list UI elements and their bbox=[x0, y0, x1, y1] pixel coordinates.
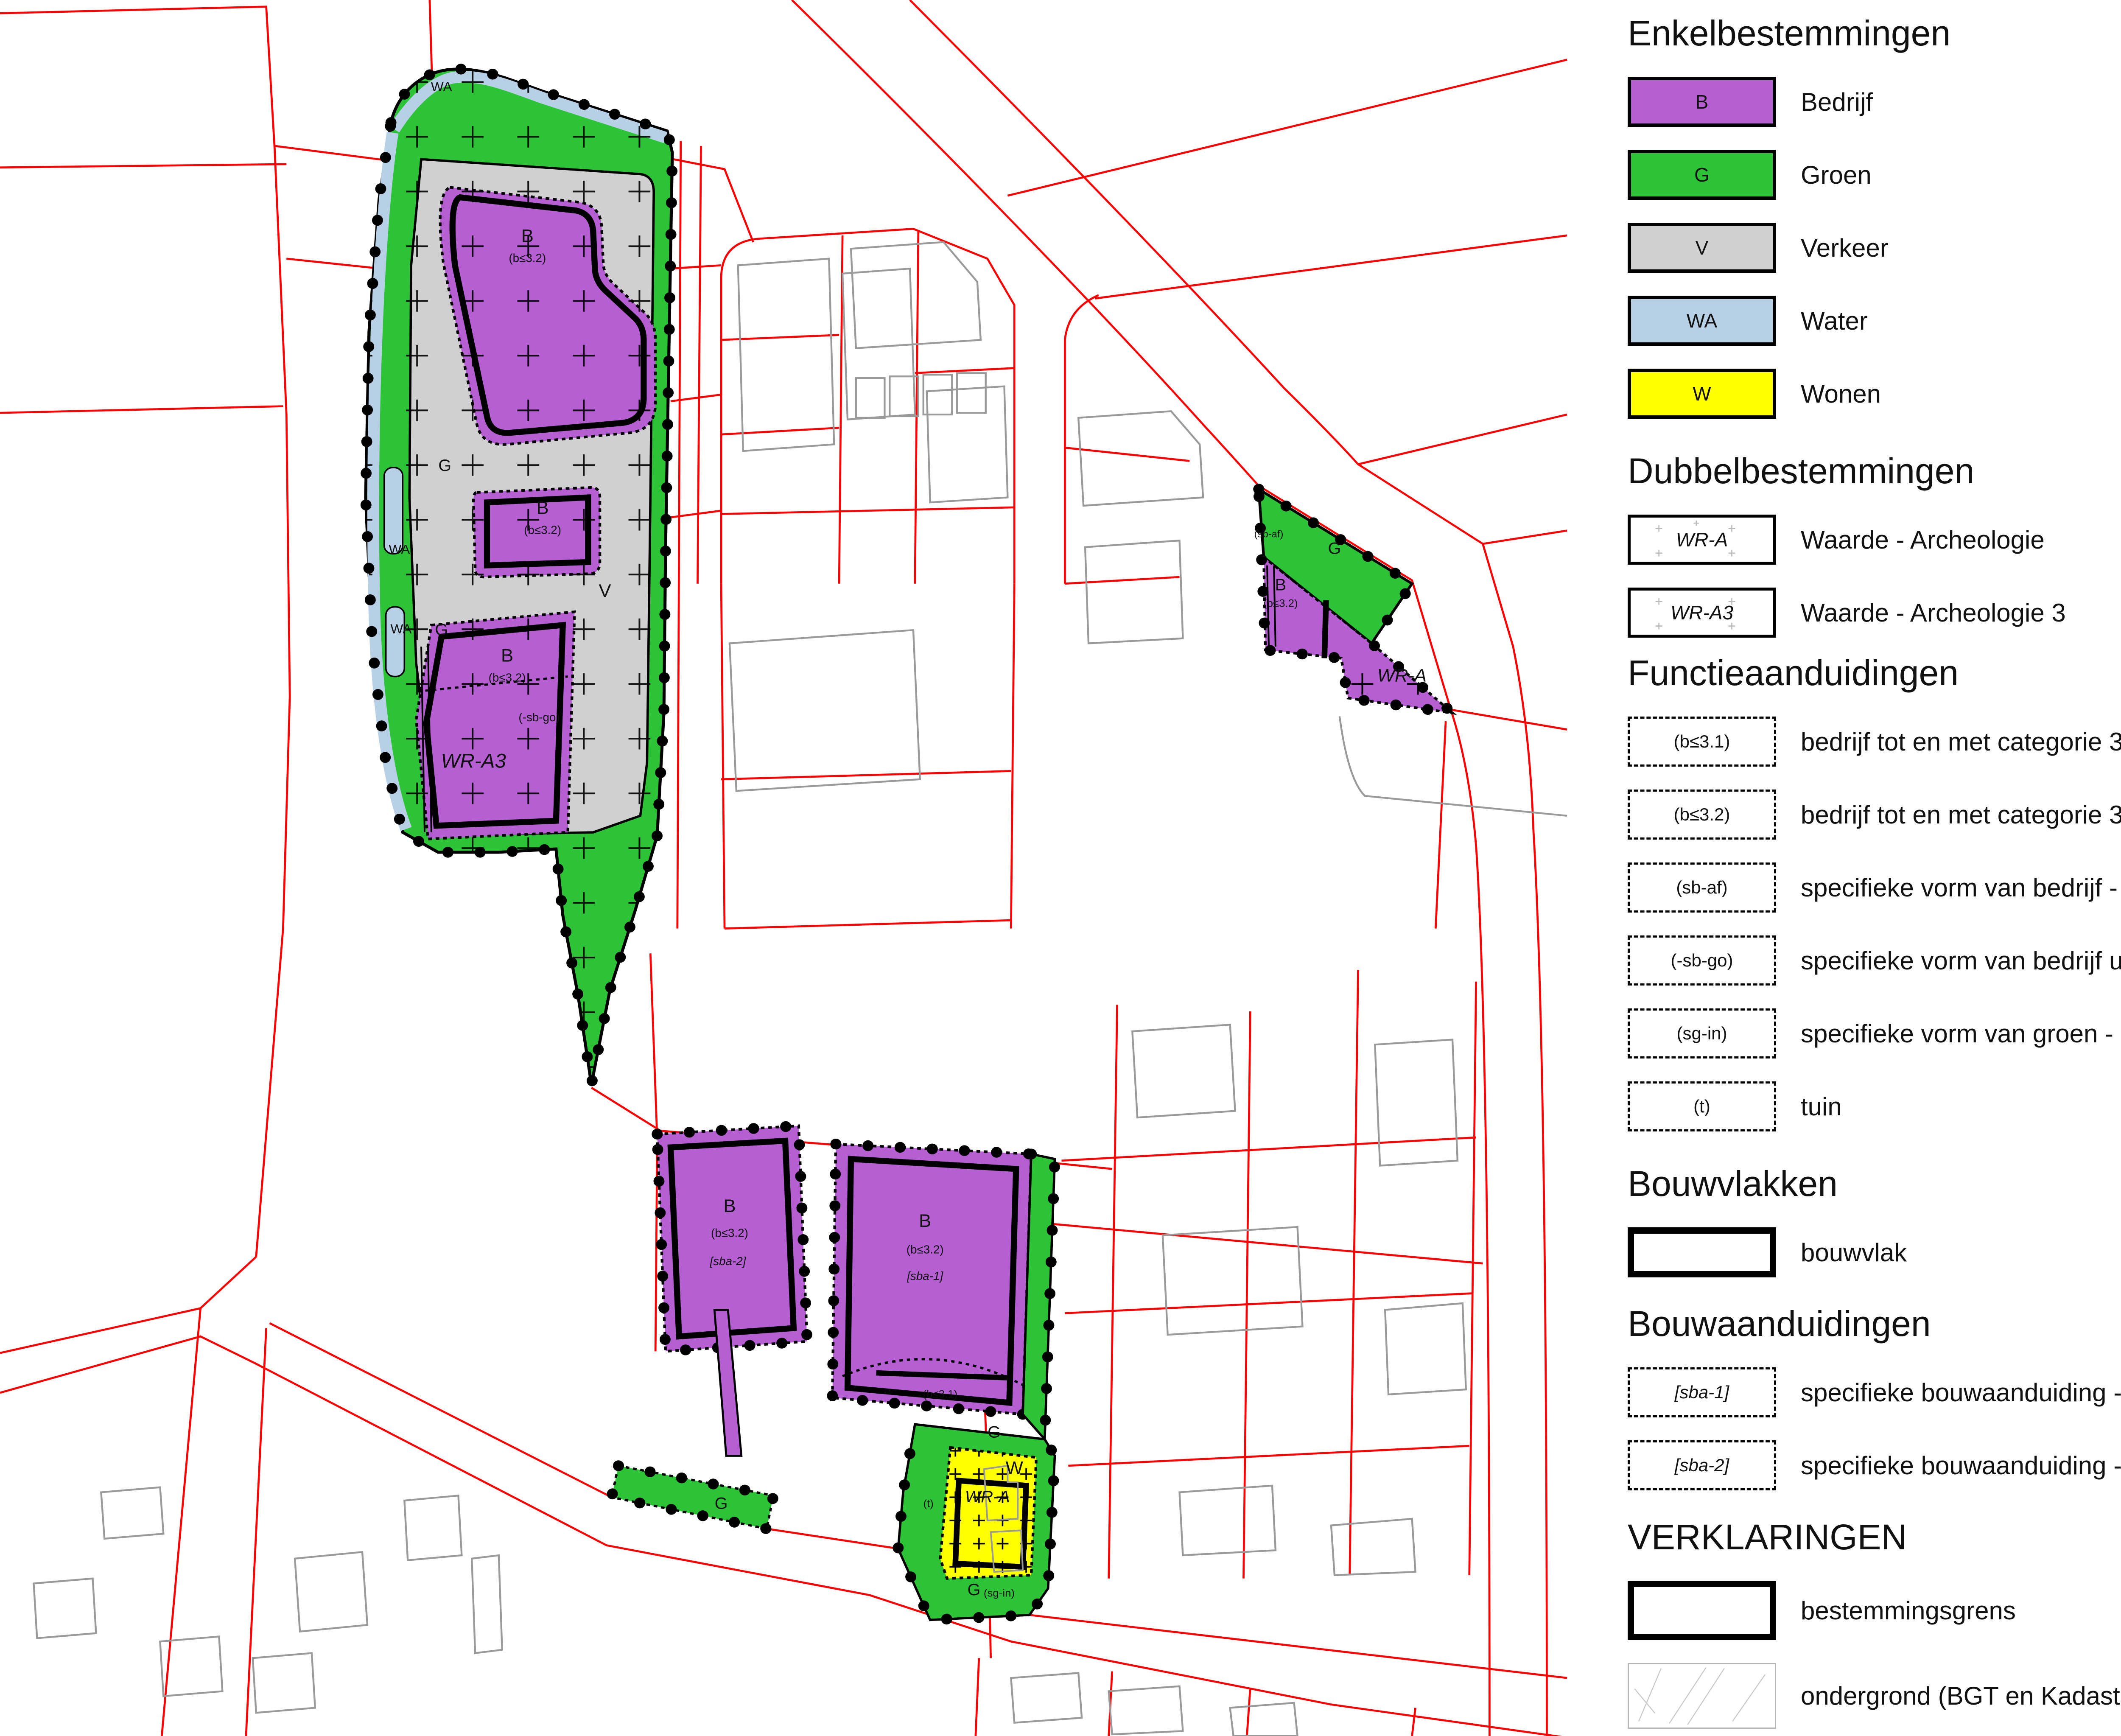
bestemmingsgrens-swatch bbox=[1628, 1581, 1776, 1640]
plan-area-south bbox=[612, 1126, 1055, 1620]
wr-a-swatch: WR-A bbox=[1628, 515, 1776, 565]
ondergrond-pattern-icon bbox=[1629, 1664, 1775, 1728]
legend-item-sba-1: [sba-1] specifieke bouwaanduiding - 1 bbox=[1628, 1367, 2121, 1417]
legend-section-title: Enkelbestemmingen bbox=[1628, 13, 2121, 54]
legend-item-bedrijf: B Bedrijf bbox=[1628, 77, 2121, 127]
legend-item-wonen: W Wonen bbox=[1628, 369, 2121, 419]
label-wr-a-east: WR-A bbox=[1377, 666, 1427, 686]
legend-item-label: Waarde - Archeologie bbox=[1801, 525, 2045, 554]
legend-section-title: Bouwvlakken bbox=[1628, 1163, 2121, 1204]
legend-item-verkeer: V Verkeer bbox=[1628, 223, 2121, 273]
legend-item-label: specifieke vorm van groen - inrit bbox=[1801, 1019, 2121, 1048]
building-outlines bbox=[34, 206, 1567, 1736]
cadastral-lines bbox=[0, 0, 1567, 1736]
label-sg-in: (sg-in) bbox=[984, 1588, 1015, 1599]
label-sba2: [sba-2] bbox=[709, 1254, 746, 1268]
legend-section-bouwaanduidingen: Bouwaanduidingen [sba-1] specifieke bouw… bbox=[1628, 1303, 2121, 1490]
label-groen-w: G bbox=[435, 620, 448, 639]
legend-section-verklaringen: VERKLARINGEN bestemmingsgrens ondergrond… bbox=[1628, 1517, 2121, 1729]
legend-item-sb-go: (-sb-go) specifieke vorm van bedrijf uit… bbox=[1628, 935, 2121, 986]
legend-item-label: specifieke bouwaanduiding - 2 bbox=[1801, 1451, 2121, 1480]
legend-item-label: bestemmingsgrens bbox=[1801, 1596, 2016, 1625]
legend-section-enkelbestemmingen: Enkelbestemmingen B Bedrijf G Groen V Ve… bbox=[1628, 13, 2121, 419]
bedrijf-swatch: B bbox=[1628, 77, 1776, 127]
legend-section-title: VERKLARINGEN bbox=[1628, 1517, 2121, 1558]
legend-item-label: Bedrijf bbox=[1801, 87, 1873, 117]
legend-item-sb-af: (sb-af) specifieke vorm van bedrijf - er… bbox=[1628, 862, 2121, 913]
label-wr-a-wonen: WR-A bbox=[965, 1487, 1010, 1506]
bouwvlak-swatch bbox=[1628, 1227, 1776, 1277]
label-bedrijf-2: B bbox=[536, 498, 548, 518]
label-bedrijf-sba1: B bbox=[919, 1211, 931, 1231]
label-verkeer: V bbox=[599, 581, 611, 601]
legend-item-ondergrond: ondergrond (BGT en Kadastrale ondergrond… bbox=[1628, 1663, 2121, 1729]
label-sb-af: (sb-af) bbox=[1254, 529, 1284, 540]
legend-item-waarde-archeologie: WR-A Waarde - Archeologie bbox=[1628, 515, 2121, 565]
sba-2-swatch: [sba-2] bbox=[1628, 1440, 1776, 1490]
legend-item-label: specifieke vorm van bedrijf - erfafschei… bbox=[1801, 873, 2121, 902]
legend-item-label: bedrijf tot en met categorie 3.2 bbox=[1801, 800, 2121, 829]
label-groen-s-top: G bbox=[988, 1423, 1001, 1442]
legend-panel: Enkelbestemmingen B Bedrijf G Groen V Ve… bbox=[1628, 0, 2121, 1736]
label-water-top: WA bbox=[431, 79, 452, 94]
label-bedrijf-3-cat: (b≤3.2) bbox=[489, 671, 526, 684]
legend-item-b32: (b≤3.2) bedrijf tot en met categorie 3.2 bbox=[1628, 790, 2121, 840]
sba-1-swatch: [sba-1] bbox=[1628, 1367, 1776, 1417]
legend-item-label: bedrijf tot en met categorie 3.1 bbox=[1801, 727, 2121, 756]
legend-item-label: Water bbox=[1801, 306, 1868, 336]
label-wonen: W bbox=[1006, 1458, 1023, 1478]
label-groen-s-bottom: G bbox=[967, 1580, 980, 1599]
wr-a3-swatch: WR-A3 bbox=[1628, 588, 1776, 638]
legend-item-label: Verkeer bbox=[1801, 233, 1889, 263]
legend-item-sg-in: (sg-in) specifieke vorm van groen - inri… bbox=[1628, 1008, 2121, 1058]
legend-item-sba-2: [sba-2] specifieke bouwaanduiding - 2 bbox=[1628, 1440, 2121, 1490]
b31-swatch: (b≤3.1) bbox=[1628, 717, 1776, 767]
legend-section-title: Bouwaanduidingen bbox=[1628, 1303, 2121, 1344]
legend-item-groen: G Groen bbox=[1628, 150, 2121, 200]
sb-go-swatch: (-sb-go) bbox=[1628, 935, 1776, 986]
legend-item-bestemmingsgrens: bestemmingsgrens bbox=[1628, 1581, 2121, 1640]
label-bedrijf-east: B bbox=[1275, 576, 1286, 594]
label-tuin: (t) bbox=[923, 1498, 933, 1510]
label-bedrijf-3: B bbox=[501, 646, 513, 666]
legend-section-title: Dubbelbestemmingen bbox=[1628, 451, 2121, 492]
label-groen-nw: G bbox=[438, 456, 451, 475]
label-bedrijf-2-cat: (b≤3.2) bbox=[524, 524, 561, 537]
water-swatch: WA bbox=[1628, 296, 1776, 346]
legend-item-label: Wonen bbox=[1801, 379, 1881, 409]
legend-item-label: Groen bbox=[1801, 160, 1872, 190]
b32-swatch: (b≤3.2) bbox=[1628, 790, 1776, 840]
label-bedrijf-east-cat: (b≤3.2) bbox=[1263, 598, 1298, 610]
legend-item-label: tuin bbox=[1801, 1092, 1842, 1121]
legend-item-label: Waarde - Archeologie 3 bbox=[1801, 598, 2066, 627]
legend-item-b31: (b≤3.1) bedrijf tot en met categorie 3.1 bbox=[1628, 717, 2121, 767]
legend-section-functieaanduidingen: Functieaanduidingen (b≤3.1) bedrijf tot … bbox=[1628, 652, 2121, 1131]
legend-item-label: specifieke bouwaanduiding - 1 bbox=[1801, 1378, 2121, 1407]
label-bedrijf-sba2-cat: (b≤3.2) bbox=[711, 1226, 748, 1240]
label-bedrijf-sba1-cat: (b≤3.2) bbox=[907, 1243, 944, 1256]
label-bedrijf-1-cat: (b≤3.2) bbox=[509, 252, 546, 265]
label-water-west-1: WA bbox=[389, 542, 410, 557]
wonen-swatch: W bbox=[1628, 369, 1776, 419]
legend-section-dubbelbestemmingen: Dubbelbestemmingen WR-A Waarde - Archeol… bbox=[1628, 451, 2121, 638]
label-b31: (b≤3.1) bbox=[923, 1389, 958, 1400]
tuin-swatch: (t) bbox=[1628, 1081, 1776, 1131]
ondergrond-swatch bbox=[1628, 1663, 1776, 1729]
label-groen-east: G bbox=[1328, 539, 1341, 558]
legend-item-label: ondergrond (BGT en Kadastrale ondergrond… bbox=[1801, 1681, 2121, 1711]
plan-area-northwest bbox=[366, 69, 672, 1084]
label-groen-strip-w: G bbox=[715, 1494, 728, 1513]
label-bedrijf-sba2: B bbox=[723, 1196, 736, 1216]
legend-item-waarde-archeologie-3: WR-A3 Waarde - Archeologie 3 bbox=[1628, 588, 2121, 638]
label-water-west-2: WA bbox=[390, 621, 411, 636]
groen-swatch: G bbox=[1628, 150, 1776, 200]
legend-item-label: bouwvlak bbox=[1801, 1238, 1907, 1267]
sb-af-swatch: (sb-af) bbox=[1628, 862, 1776, 913]
label-wr-a3: WR-A3 bbox=[441, 750, 506, 773]
legend-item-bouwvlak: bouwvlak bbox=[1628, 1227, 2121, 1277]
legend-item-label: specifieke vorm van bedrijf uitgesloten … bbox=[1801, 946, 2121, 975]
legend-item-water: WA Water bbox=[1628, 296, 2121, 346]
legend-item-tuin: (t) tuin bbox=[1628, 1081, 2121, 1131]
label-sb-go: (-sb-go) bbox=[518, 711, 560, 724]
label-sba1: [sba-1] bbox=[907, 1269, 943, 1282]
legend-section-title: Functieaanduidingen bbox=[1628, 652, 2121, 694]
verkeer-swatch: V bbox=[1628, 223, 1776, 273]
region-groen-strip-west bbox=[612, 1466, 773, 1529]
sg-in-swatch: (sg-in) bbox=[1628, 1008, 1776, 1058]
label-bedrijf-1: B bbox=[521, 226, 534, 246]
legend-section-bouwvlakken: Bouwvlakken bouwvlak bbox=[1628, 1163, 2121, 1277]
zoning-plan-page: { "colors": { "bedrijf": "#b55fd3", "gro… bbox=[0, 0, 2121, 1736]
